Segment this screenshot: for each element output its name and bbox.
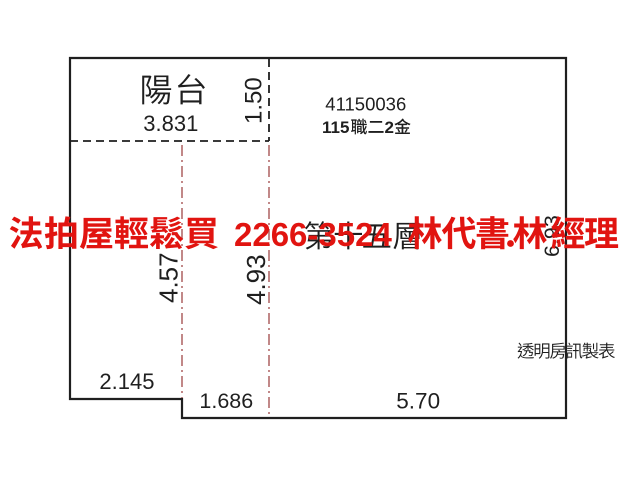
svg-text:1.686: 1.686 (199, 389, 253, 413)
svg-text:2.145: 2.145 (99, 369, 154, 394)
svg-text:3.831: 3.831 (143, 111, 198, 136)
svg-text:115: 115 (322, 118, 349, 137)
svg-text:4.57: 4.57 (154, 252, 184, 303)
svg-text:2266-3524: 2266-3524 (234, 216, 392, 253)
svg-text:5.70: 5.70 (396, 389, 440, 414)
svg-text:2: 2 (385, 118, 394, 137)
svg-text:1.50: 1.50 (241, 77, 268, 124)
svg-text:4.93: 4.93 (241, 254, 271, 305)
svg-text:41150036: 41150036 (325, 94, 406, 115)
